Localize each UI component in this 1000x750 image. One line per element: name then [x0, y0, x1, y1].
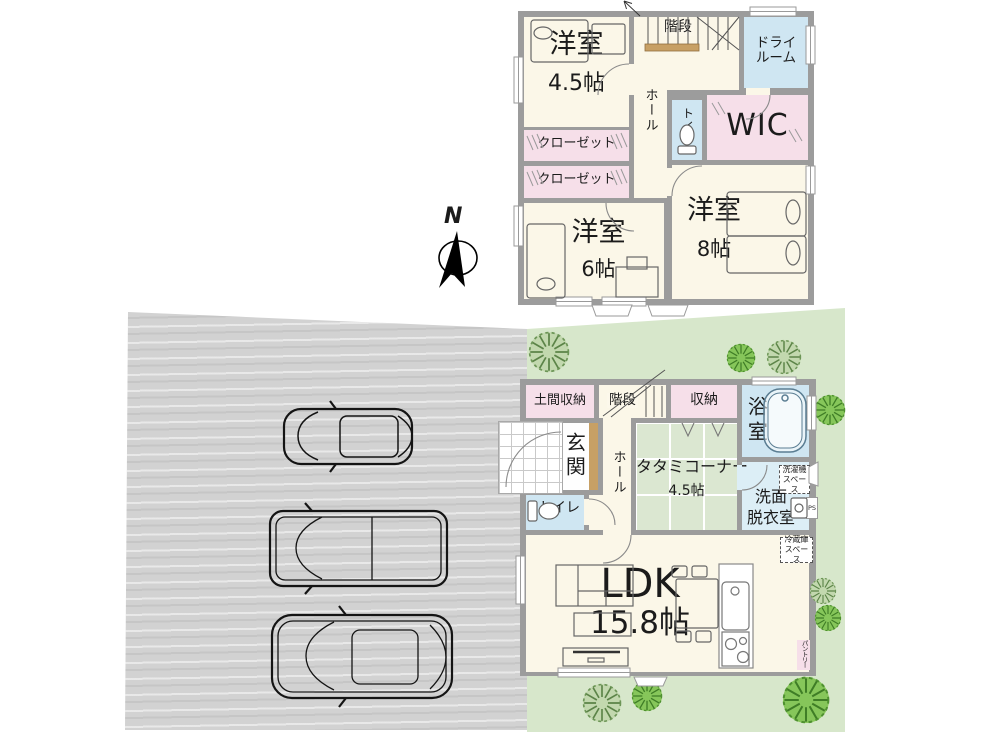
label-wic: WIC: [707, 109, 808, 143]
label-genkan: 玄関: [563, 432, 585, 480]
compass-icon: [439, 231, 477, 288]
label-room45-name: 洋室: [524, 30, 629, 60]
label-room6-name: 洋室: [546, 218, 651, 248]
fridge-space: 冷蔵庫スペース: [780, 537, 813, 563]
label-toilet-1f: トイレ: [534, 501, 584, 517]
room-western-8: [672, 165, 808, 299]
label-toilet-2f: トイレ: [680, 107, 693, 146]
driveway: [125, 310, 527, 730]
label-room6-area: 6帖: [546, 258, 651, 282]
pantry: パントリー: [797, 640, 810, 670]
label-closet-a: クローゼット: [524, 137, 629, 152]
compass-north-label: N: [444, 205, 462, 230]
label-tatami-area: 4.5帖: [636, 484, 737, 500]
label-room8-area: 8帖: [658, 238, 770, 262]
label-ldk-name: LDK: [560, 562, 720, 607]
genkan-step: [589, 423, 598, 490]
label-closet-b: クローゼット: [524, 173, 629, 188]
label-stairs-2f: 階段: [662, 20, 694, 36]
pipe-space: PS: [806, 497, 818, 519]
label-stairs-1f: 階段: [607, 393, 638, 408]
label-ldk-area: 15.8帖: [560, 606, 720, 641]
label-tatami-name: タタミコーナー: [636, 458, 737, 476]
hall-1f-ext: [589, 495, 603, 530]
entrance-porch: [498, 421, 563, 494]
label-dry-room: ドライルーム: [744, 36, 808, 66]
label-room45-area: 4.5帖: [524, 72, 629, 97]
tatami-corner: [636, 423, 737, 530]
label-hall-2f: ホール: [642, 88, 657, 133]
label-room8-name: 洋室: [658, 196, 770, 226]
label-doma: 土間収納: [526, 394, 594, 409]
label-washroom: 洗面脱衣室: [740, 487, 802, 529]
label-storage-1f: 収納: [671, 393, 737, 409]
label-bath: 浴室: [745, 396, 767, 446]
floor-plan-canvas: パントリー 洗濯機スペース 冷蔵庫スペース PS 洋室 4.5帖 クローゼット …: [0, 0, 1000, 750]
label-hall-1f: ホール: [610, 450, 625, 495]
pantry-label: パントリー: [800, 640, 807, 668]
